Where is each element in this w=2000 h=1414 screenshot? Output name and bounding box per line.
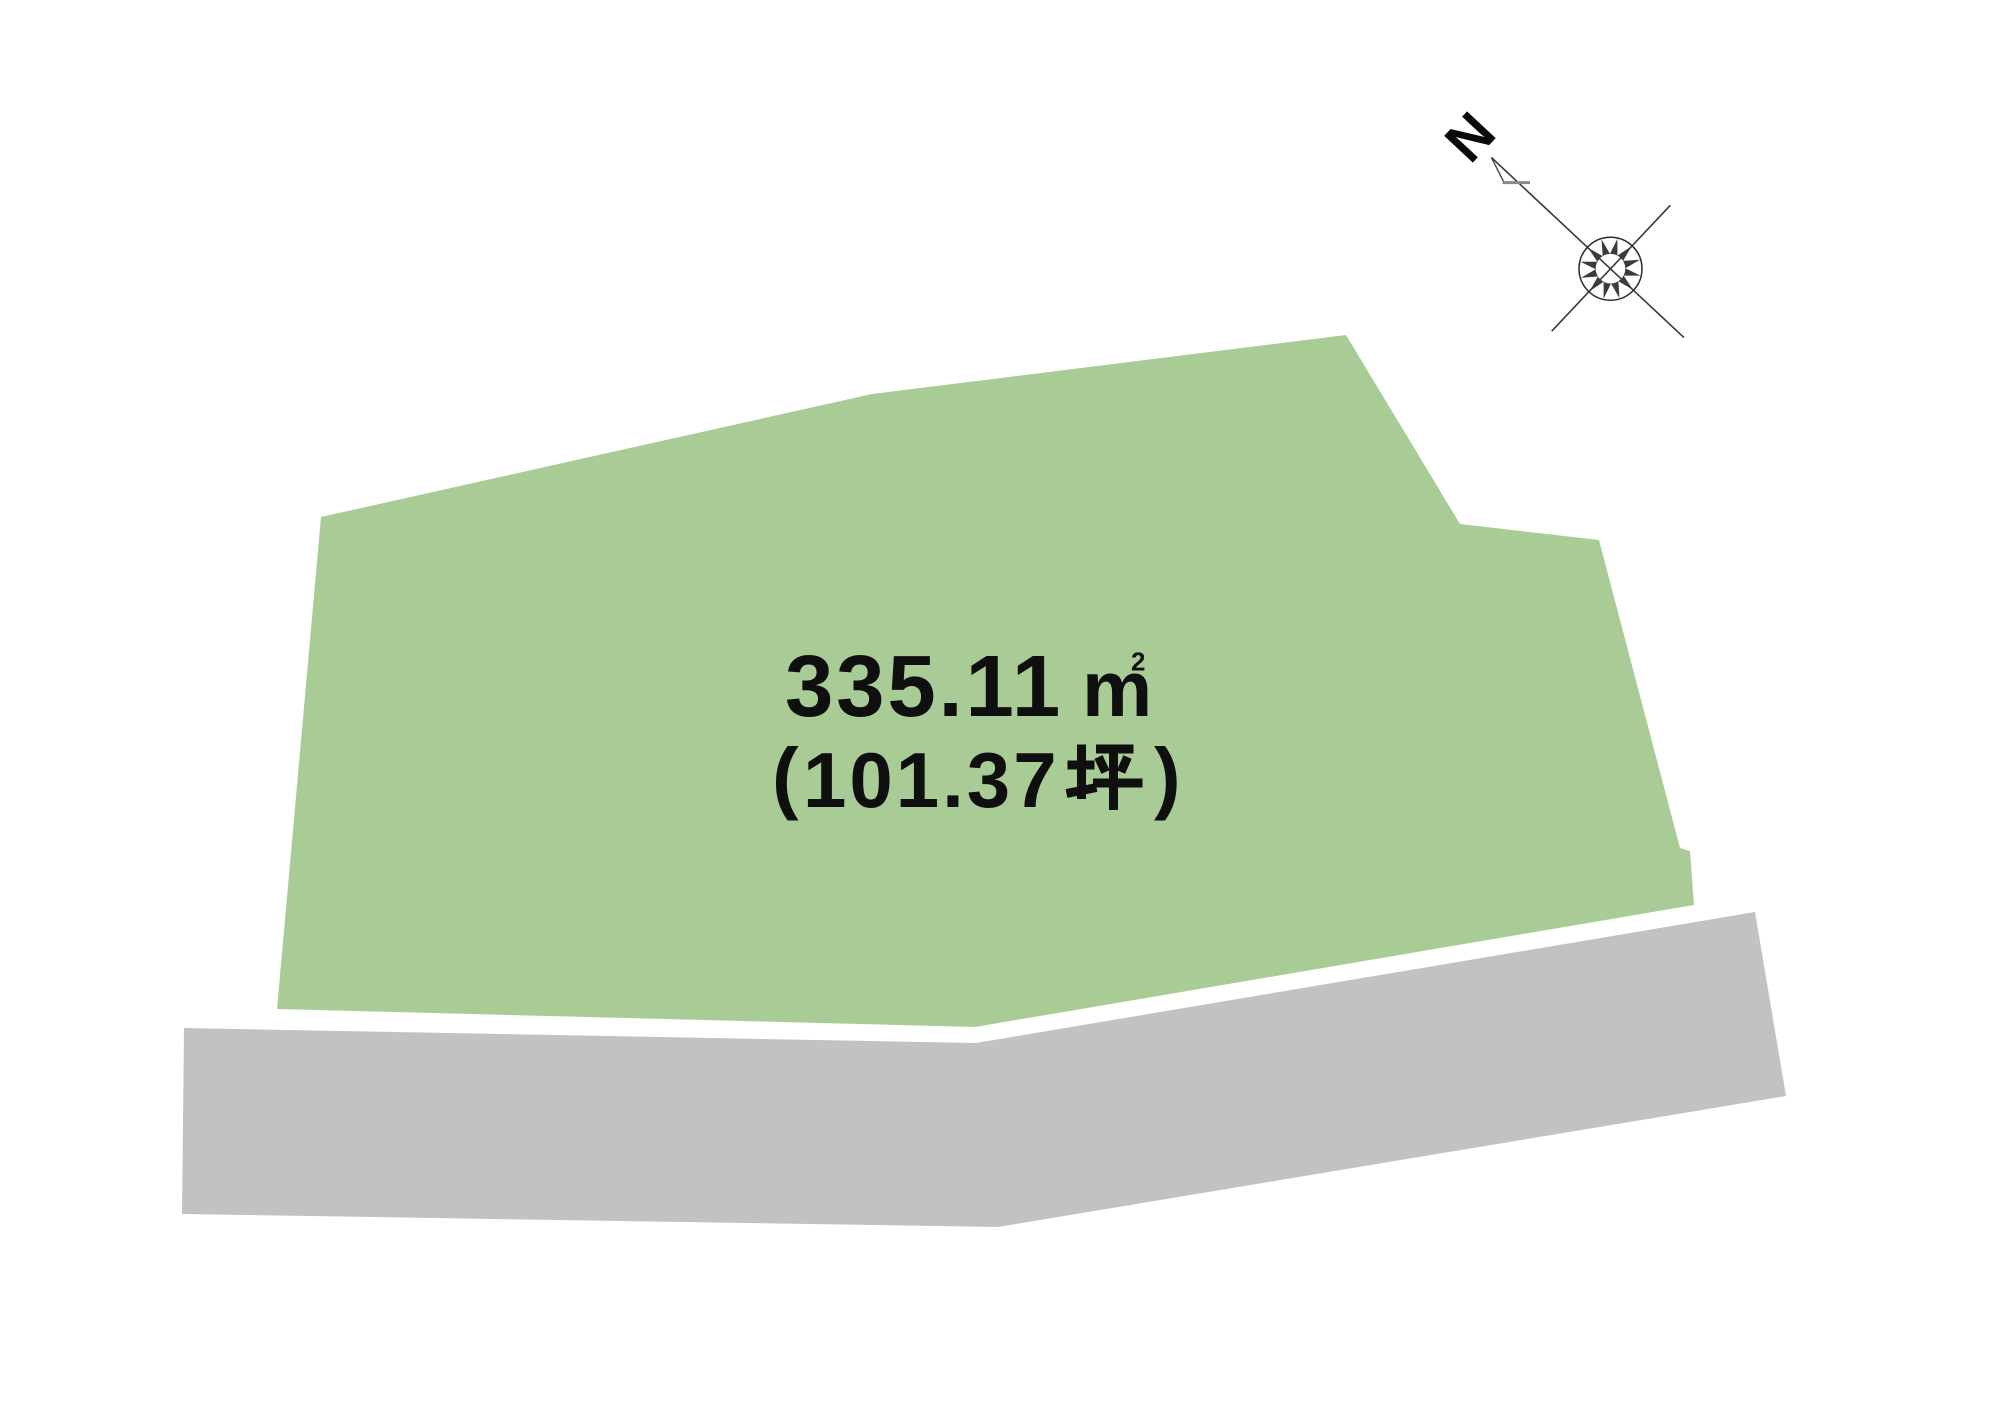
svg-text:101.37: 101.37 bbox=[803, 736, 1060, 824]
svg-text:): ) bbox=[1154, 732, 1181, 821]
svg-text:(: ( bbox=[772, 732, 799, 821]
svg-text:335.11: 335.11 bbox=[785, 638, 1063, 735]
svg-text:2: 2 bbox=[1131, 647, 1145, 677]
